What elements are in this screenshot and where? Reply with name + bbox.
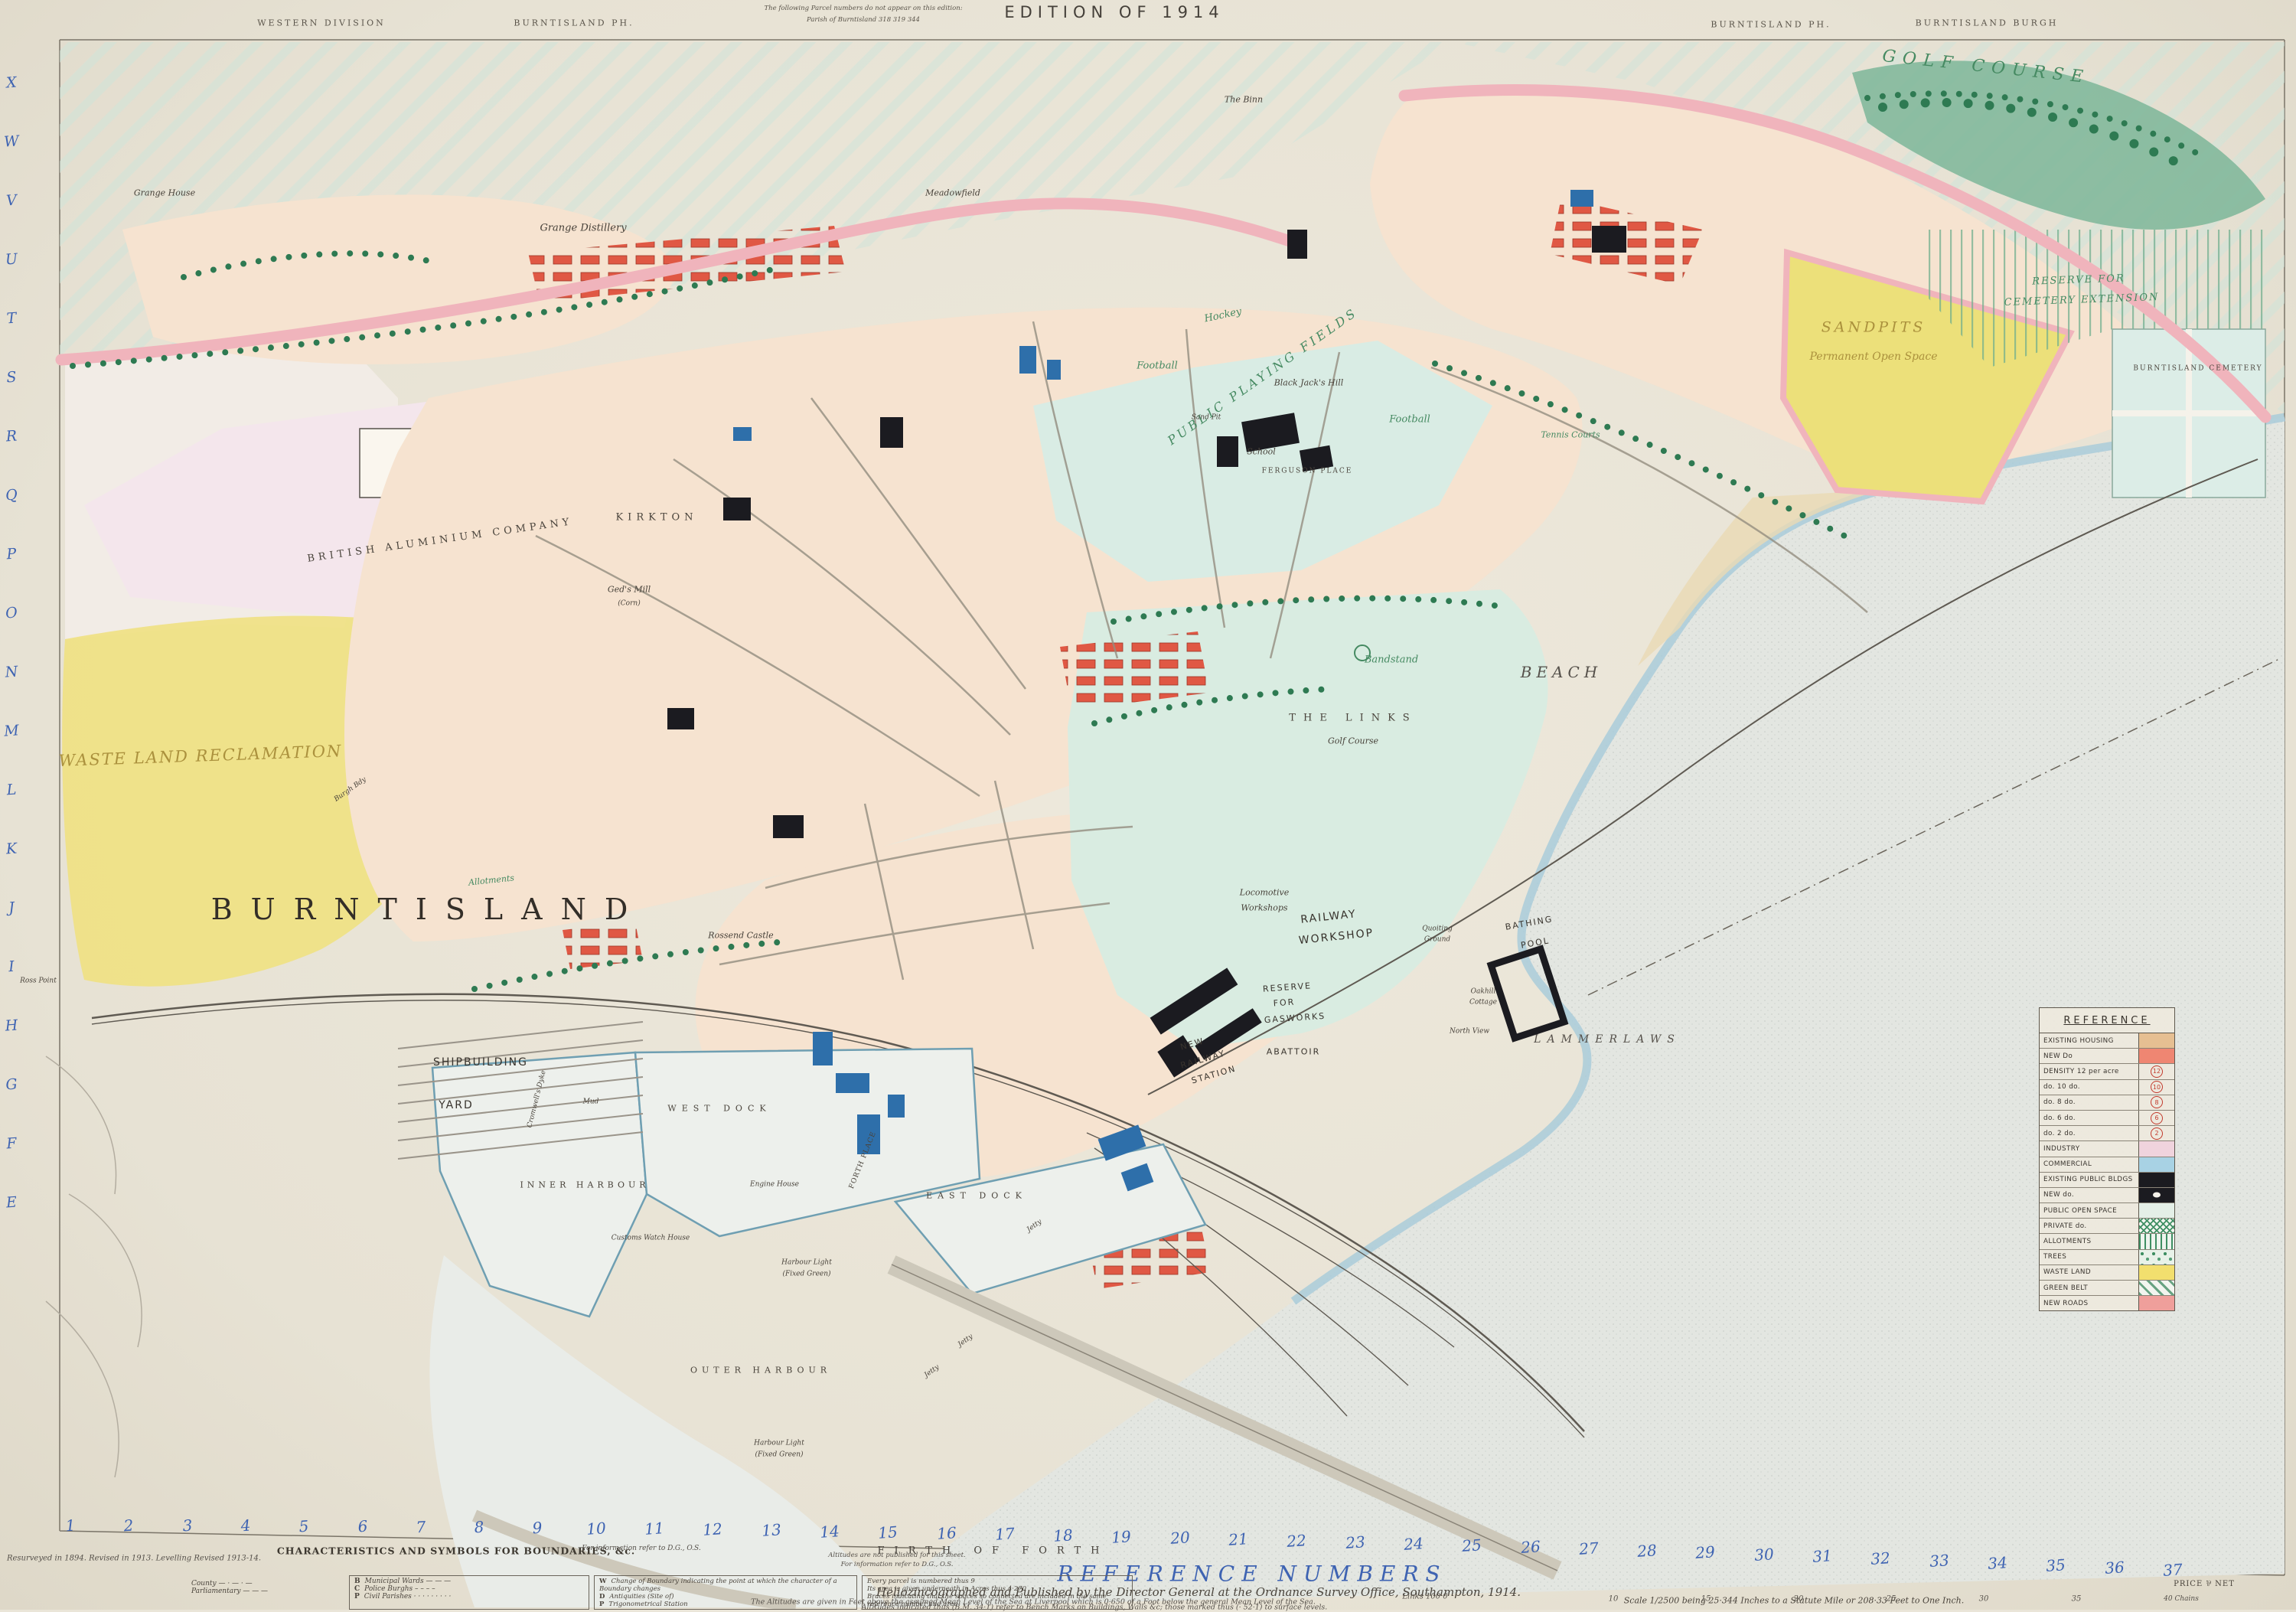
map-label-shipbuilding: SHIPBUILDING (433, 1057, 528, 1068)
map-label-rossend-castle: Rossend Castle (708, 932, 773, 940)
grid-letter-e: E (5, 1194, 17, 1212)
map-label-sandpits: SANDPITS (1821, 321, 1926, 335)
footer-price: PRICE ⅌ NET (2174, 1578, 2235, 1588)
legend-swatch-badge: 6 (2139, 1111, 2174, 1125)
scale-bar-number-35: 35 (2072, 1595, 2082, 1604)
firth-of-forth-label: FIRTH OF FORTH (878, 1545, 1110, 1557)
boundaries-item-p: PCivil Parishes · · · · · · · · · (354, 1593, 584, 1601)
map-label-for: FOR (1273, 998, 1295, 1008)
grid-number-20: 20 (1169, 1528, 1190, 1548)
legend-label: do. 2 do. (2040, 1126, 2139, 1140)
legend-swatch-fill (2139, 1265, 2174, 1280)
boundaries-table: County — · — · —Parliamentary — — — BMun… (191, 1575, 1133, 1610)
grid-letter-k: K (5, 840, 18, 858)
boundaries-col-a-item: Parliamentary — — — (191, 1588, 344, 1595)
grid-number-7: 7 (416, 1517, 426, 1536)
legend-row-allotments: ALLOTMENTS (2040, 1234, 2174, 1249)
boundaries-col-a-item: County — · — · — (191, 1580, 344, 1588)
legend-label: do. 8 do. (2040, 1095, 2139, 1110)
grid-number-4: 4 (240, 1516, 251, 1535)
grid-letter-p: P (6, 546, 17, 563)
map-label-north-view: North View (1450, 1029, 1489, 1036)
grid-letter-s: S (6, 369, 18, 387)
grid-letter-v: V (5, 192, 17, 210)
legend-row-trees: TREES (2040, 1250, 2174, 1265)
grid-letter-q: Q (5, 486, 18, 504)
map-label-ferguson-place: FERGUSON PLACE (1262, 468, 1353, 475)
margin-note-line2: Parish of Burntisland 318 319 344 (807, 16, 920, 24)
legend-swatch-dot (2139, 1188, 2174, 1202)
boundaries-item-c: CPolice Burghs – – – – (354, 1585, 584, 1593)
legend-row-do-2-do: do. 2 do.2 (2040, 1126, 2174, 1141)
map-label-kirkton: KIRKTON (615, 513, 697, 523)
legend-swatch-fill (2139, 1296, 2174, 1310)
grid-number-31: 31 (1812, 1546, 1832, 1566)
grid-number-28: 28 (1637, 1541, 1658, 1561)
boundaries-refer-note: For information refer to D.G., O.S. (582, 1545, 701, 1552)
edition-title: EDITION OF 1914 (1004, 3, 1224, 21)
grid-number-9: 9 (532, 1518, 543, 1537)
legend-row-new-do: NEW do. (2040, 1188, 2174, 1203)
map-label-mud: Mud (583, 1099, 599, 1106)
legend-label: NEW ROADS (2040, 1296, 2139, 1310)
legend-swatch-fill (2139, 1049, 2174, 1063)
legend-swatch-fill (2139, 1203, 2174, 1218)
legend-swatch-fill (2139, 1141, 2174, 1156)
grid-number-25: 25 (1462, 1535, 1482, 1555)
map-label-beach: BEACH (1521, 664, 1602, 680)
legend-swatch-fill (2139, 1173, 2174, 1187)
legend-box: REFERENCE EXISTING HOUSINGNEW DoDENSITY … (2039, 1007, 2175, 1311)
legend-label: EXISTING HOUSING (2040, 1033, 2139, 1048)
grid-number-11: 11 (644, 1519, 664, 1539)
grid-number-3: 3 (181, 1516, 192, 1535)
legend-rows: EXISTING HOUSINGNEW DoDENSITY 12 per acr… (2040, 1033, 2174, 1310)
map-label-outer-harbour: OUTER HARBOUR (690, 1366, 831, 1375)
map-label-ross-point: Ross Point (20, 978, 57, 985)
grid-number-33: 33 (1929, 1551, 1949, 1571)
margin-burgh-right: BURNTISLAND BURGH (1916, 18, 2059, 28)
legend-row-do-8-do: do. 8 do.8 (2040, 1095, 2174, 1111)
legend-label: PUBLIC OPEN SPACE (2040, 1203, 2139, 1218)
legend-row-private-do: PRIVATE do. (2040, 1219, 2174, 1234)
grid-number-34: 34 (1987, 1553, 2007, 1573)
map-label-golf-course: Golf Course (1328, 737, 1378, 746)
grid-number-13: 13 (761, 1521, 781, 1541)
boundaries-col-d-item: Braces indicating that the spaces so con… (867, 1593, 1127, 1608)
grid-letter-u: U (5, 250, 18, 268)
map-label-customs-watch-house: Customs Watch House (612, 1235, 690, 1242)
legend-row-do-6-do: do. 6 do.6 (2040, 1111, 2174, 1126)
map-label-burntisland-cemetery: BURNTISLAND CEMETERY (2133, 366, 2262, 373)
grid-letter-j: J (8, 899, 15, 916)
map-label-inner-harbour: INNER HARBOUR (520, 1181, 649, 1189)
legend-row-existing-housing: EXISTING HOUSING (2040, 1033, 2174, 1049)
grid-number-36: 36 (2104, 1558, 2125, 1578)
legend-title: REFERENCE (2040, 1008, 2174, 1033)
map-label-harbour-light: Harbour Light (781, 1260, 832, 1267)
map-label-lammerlaws: LAMMERLAWS (1534, 1034, 1681, 1045)
grid-number-14: 14 (819, 1522, 840, 1542)
map-label-abattoir: ABATTOIR (1267, 1048, 1321, 1056)
map-label-ground: Ground (1424, 937, 1450, 944)
margin-note-line1: The following Parcel numbers do not appe… (764, 5, 962, 12)
grid-number-2: 2 (123, 1516, 134, 1535)
rocky-shore (46, 1056, 142, 1477)
map-label-engine-house: Engine House (750, 1182, 799, 1189)
legend-swatch-badge: 10 (2139, 1080, 2174, 1095)
legend-swatch-badge: 12 (2139, 1064, 2174, 1078)
scale-bar-number-10: 10 (1609, 1595, 1619, 1604)
grid-number-29: 29 (1695, 1542, 1716, 1562)
grid-number-16: 16 (936, 1523, 957, 1543)
legend-label: NEW do. (2040, 1188, 2139, 1202)
legend-label: TREES (2040, 1250, 2139, 1264)
grid-letter-x: X (5, 74, 17, 92)
grid-number-12: 12 (703, 1520, 723, 1540)
map-label-east-dock: EAST DOCK (926, 1192, 1027, 1200)
grid-number-6: 6 (357, 1517, 367, 1536)
grid-number-30: 30 (1753, 1545, 1774, 1565)
grid-number-32: 32 (1870, 1548, 1891, 1568)
margin-division-left: WESTERN DIVISION (257, 18, 386, 28)
grid-number-35: 35 (2046, 1555, 2066, 1575)
map-label-bandstand: Bandstand (1365, 655, 1418, 665)
footer-altitude-note2: For information refer to D.G., O.S. (841, 1561, 954, 1568)
map-label-workshops: Workshops (1241, 904, 1287, 912)
footer-resurvey: Resurveyed in 1894. Revised in 1913. Lev… (7, 1555, 261, 1563)
grid-letter-f: F (6, 1135, 18, 1153)
legend-label: INDUSTRY (2040, 1141, 2139, 1156)
grid-number-24: 24 (1403, 1534, 1424, 1554)
grid-letter-m: M (4, 722, 20, 739)
legend-label: COMMERCIAL (2040, 1157, 2139, 1172)
legend-label: PRIVATE do. (2040, 1219, 2139, 1233)
legend-row-green-belt: GREEN BELT (2040, 1281, 2174, 1296)
legend-swatch-vlines (2139, 1234, 2174, 1248)
grid-number-21: 21 (1228, 1529, 1248, 1549)
map-label-west-dock: WEST DOCK (667, 1105, 771, 1113)
grid-letter-t: T (6, 310, 17, 328)
grid-letter-h: H (5, 1016, 18, 1034)
legend-swatch-badge: 8 (2139, 1095, 2174, 1110)
legend-label: ALLOTMENTS (2040, 1234, 2139, 1248)
map-label-permanent-open-space: Permanent Open Space (1809, 351, 1937, 362)
grid-letter-n: N (5, 663, 18, 680)
legend-swatch-crosshatch (2139, 1219, 2174, 1233)
map-label-the-links: THE LINKS (1289, 713, 1417, 723)
map-sheet: Grange HouseGrange DistilleryMeadowfield… (0, 0, 2296, 1610)
map-label-grange-distillery: Grange Distillery (540, 224, 626, 233)
grid-number-18: 18 (1053, 1526, 1074, 1545)
map-label-school: School (1247, 448, 1276, 456)
map-label-yard: YARD (439, 1100, 474, 1111)
map-label-the-binn: The Binn (1225, 96, 1263, 104)
grid-letter-g: G (5, 1075, 18, 1093)
boundaries-item-d: DAntiquities (Site of) (599, 1593, 852, 1601)
map-label-ged-s-mill: Ged's Mill (608, 586, 651, 594)
map-label-grange-house: Grange House (134, 189, 195, 197)
grid-number-22: 22 (1287, 1531, 1307, 1551)
map-label-fixed-green: (Fixed Green) (755, 1452, 803, 1459)
legend-swatch-dlines (2139, 1281, 2174, 1295)
legend-row-existing-public-bldgs: EXISTING PUBLIC BLDGS (2040, 1173, 2174, 1188)
map-label-football: Football (1389, 415, 1430, 425)
legend-row-industry: INDUSTRY (2040, 1141, 2174, 1157)
legend-swatch-fill (2139, 1157, 2174, 1172)
grid-number-27: 27 (1578, 1539, 1599, 1558)
map-label-fixed-green: (Fixed Green) (782, 1271, 830, 1278)
map-label-quoiting: Quoiting (1422, 926, 1453, 933)
grid-number-26: 26 (1520, 1537, 1541, 1557)
legend-row-commercial: COMMERCIAL (2040, 1157, 2174, 1173)
footer-chains-label: 40 Chains (2164, 1595, 2199, 1603)
legend-label: do. 10 do. (2040, 1080, 2139, 1095)
legend-swatch-fill (2139, 1033, 2174, 1048)
map-label-meadowfield: Meadowfield (925, 189, 980, 197)
grid-letter-r: R (5, 428, 18, 445)
grid-number-17: 17 (994, 1525, 1015, 1545)
map-label-corn: (Corn) (618, 601, 640, 608)
map-label-black-jack-s-hill: Black Jack's Hill (1274, 379, 1344, 387)
grid-number-15: 15 (878, 1522, 899, 1542)
legend-row-waste-land: WASTE LAND (2040, 1265, 2174, 1281)
legend-row-new-do: NEW Do (2040, 1049, 2174, 1064)
legend-row-new-roads: NEW ROADS (2040, 1296, 2174, 1310)
legend-swatch-badge: 2 (2139, 1126, 2174, 1140)
grid-number-23: 23 (1345, 1532, 1365, 1552)
map-label-cottage: Cottage (1469, 1000, 1497, 1007)
boundaries-col-d-item: Every parcel is numbered thus 9 (867, 1578, 1127, 1585)
legend-label: do. 6 do. (2040, 1111, 2139, 1125)
scale-bar-number-30: 30 (1979, 1595, 1989, 1604)
grid-letter-w: W (3, 132, 19, 150)
legend-label: NEW Do (2040, 1049, 2139, 1063)
map-label-football: Football (1137, 361, 1178, 371)
grid-letter-o: O (5, 604, 18, 622)
legend-label: DENSITY 12 per acre (2040, 1064, 2139, 1078)
margin-parish-left: BURNTISLAND PH. (514, 18, 634, 28)
legend-row-density-12-per-acre: DENSITY 12 per acre12 (2040, 1064, 2174, 1079)
grid-number-8: 8 (474, 1518, 484, 1537)
legend-swatch-dots (2139, 1250, 2174, 1264)
grid-number-10: 10 (585, 1519, 606, 1539)
boundaries-item-b: BMunicipal Wards — — — (354, 1578, 584, 1585)
map-label-burntisland: BURNTISLAND (211, 895, 647, 924)
legend-label: WASTE LAND (2040, 1265, 2139, 1280)
legend-label: EXISTING PUBLIC BLDGS (2040, 1173, 2139, 1187)
boundaries-item-w: WChange of Boundary indicating the point… (599, 1578, 852, 1593)
footer-links-scale: Links 100 0 (1402, 1593, 1447, 1601)
legend-label: GREEN BELT (2040, 1281, 2139, 1295)
margin-parish-right: BURNTISLAND PH. (1711, 20, 1831, 30)
grid-number-1: 1 (65, 1516, 76, 1535)
legend-row-do-10-do: do. 10 do.10 (2040, 1080, 2174, 1095)
boundaries-col-d-item: Its area is given underneath in Acres th… (867, 1585, 1127, 1593)
boundaries-item-p: PTrigonometrical Station (599, 1601, 852, 1608)
grid-number-5: 5 (298, 1516, 309, 1535)
map-label-sand-pit: Sand Pit (1192, 415, 1221, 422)
burntisland-map-drawing (0, 0, 2296, 1610)
legend-row-public-open-space: PUBLIC OPEN SPACE (2040, 1203, 2174, 1219)
grid-number-19: 19 (1111, 1527, 1132, 1547)
map-label-oakhill: Oakhill (1471, 989, 1496, 996)
map-label-locomotive: Locomotive (1240, 889, 1289, 897)
grid-letter-i: I (8, 958, 15, 975)
map-label-harbour-light: Harbour Light (754, 1441, 804, 1447)
footer-scale-statement: Scale 1/2500 being 25·344 Inches to a St… (1624, 1596, 1964, 1606)
grid-letter-l: L (6, 782, 17, 799)
map-label-tennis-courts: Tennis Courts (1541, 431, 1600, 439)
